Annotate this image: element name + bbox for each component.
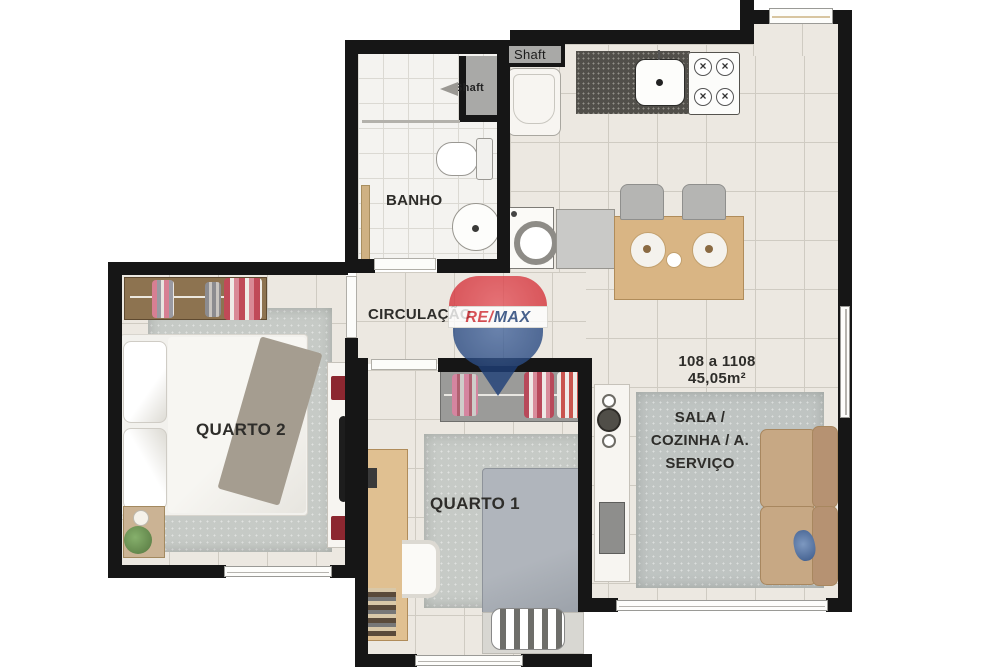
washing-machine-knob [511, 211, 517, 217]
quarto2-window [224, 566, 332, 577]
quarto1-door-leaf [371, 359, 437, 370]
wall-banho-top [345, 40, 513, 54]
stove-burner-4: × [716, 88, 734, 106]
dining-chair-1 [620, 184, 664, 220]
wall-banho-bottom-right [437, 259, 510, 273]
sofa-back-1 [812, 426, 838, 508]
wall-quarto2-bottom-left [108, 565, 226, 578]
desk-chair [402, 540, 440, 598]
single-bed-pillow [491, 608, 565, 650]
desk-books [366, 588, 396, 636]
rack-decor-small-2 [602, 434, 616, 448]
table-centerpiece [666, 252, 682, 268]
floor-plan: Shaft × × × × [0, 0, 1000, 667]
plate-1-food [643, 245, 651, 253]
sink-faucet [658, 50, 660, 60]
stove-burner-1: × [694, 58, 712, 76]
balloon-top-icon [449, 276, 547, 306]
bath-shaft-wall-h [459, 115, 498, 122]
bed-pillow-2 [123, 428, 167, 510]
wall-quarto1-bottom-left [355, 654, 417, 667]
bed-pillow-1 [123, 341, 167, 423]
dining-chair-2 [682, 184, 726, 220]
quarto1-window [415, 655, 523, 666]
wall-quarto1-bottom-right [521, 654, 592, 667]
shower-head-icon [440, 82, 458, 96]
quarto2-door-leaf [346, 276, 357, 338]
wall-sala-bottom-right-stub [826, 598, 852, 612]
toilet-bowl [436, 142, 478, 176]
bath-door-leaf-wood [361, 185, 370, 265]
toilet-tank [476, 138, 493, 180]
closet-clothes-3 [224, 278, 262, 320]
banho-door-leaf [374, 258, 436, 270]
washing-machine-door [514, 221, 558, 265]
kitchen-shaft-label: Shaft [514, 47, 546, 62]
wall-quarto2-top [108, 262, 348, 275]
wall-kitchen-step [740, 0, 754, 44]
laundry-tank-basin [513, 74, 555, 124]
wall-quarto1-sala-divider [578, 360, 592, 612]
unit-info: 108 a 1108 45,05m² [656, 353, 778, 387]
balloon-bottom-icon [453, 328, 543, 370]
remax-text-re: RE [465, 309, 488, 326]
closet-clothes-2 [205, 282, 221, 317]
wall-sala-bottom-left-stub [592, 598, 618, 612]
sala-label-line-2: COZINHA / A. [630, 429, 770, 452]
room-label-sala: SALA / COZINHA / A. SERVIÇO [630, 406, 770, 475]
unit-area: 45,05m² [656, 370, 778, 387]
wall-quarto1-left [355, 358, 368, 667]
kitchen-top-floor [753, 22, 840, 56]
washbasin-drain [472, 225, 479, 232]
sofa-back-2 [812, 506, 838, 586]
sala-label-line-3: SERVIÇO [630, 452, 770, 475]
wall-banho-bottom-left [345, 259, 375, 273]
wall-banho-left [345, 40, 358, 262]
nightstand-lamp [133, 510, 149, 526]
remax-watermark: RE/MAX [448, 274, 548, 400]
fridge [556, 209, 615, 269]
unit-range: 108 a 1108 [656, 353, 778, 370]
rack-decor-small-1 [602, 394, 616, 408]
remax-text-max: MAX [494, 309, 531, 326]
single-bed-blanket [482, 468, 584, 618]
shower-partition [362, 120, 460, 123]
bath-shaft-label: Shaft [455, 82, 484, 94]
sala-label-line-1: SALA / [630, 406, 770, 429]
kitchen-window [769, 8, 833, 24]
sala-tv [599, 502, 625, 554]
room-label-banho: BANHO [386, 192, 443, 209]
wall-quarto2-left [108, 262, 122, 578]
plant [124, 526, 152, 554]
wall-banho-right [497, 40, 510, 272]
stove-burner-2: × [716, 58, 734, 76]
room-label-quarto1: QUARTO 1 [430, 494, 520, 514]
balloon-tip-icon [478, 366, 518, 396]
rack-decor-large [597, 408, 621, 432]
sala-side-window [840, 306, 850, 418]
closet-clothes-1 [152, 280, 174, 318]
sink-drain [656, 79, 663, 86]
balloon-band: RE/MAX [448, 306, 548, 328]
plate-2-food [705, 245, 713, 253]
sala-window [616, 600, 828, 611]
room-label-quarto2: QUARTO 2 [196, 420, 286, 440]
stove-burner-3: × [694, 88, 712, 106]
